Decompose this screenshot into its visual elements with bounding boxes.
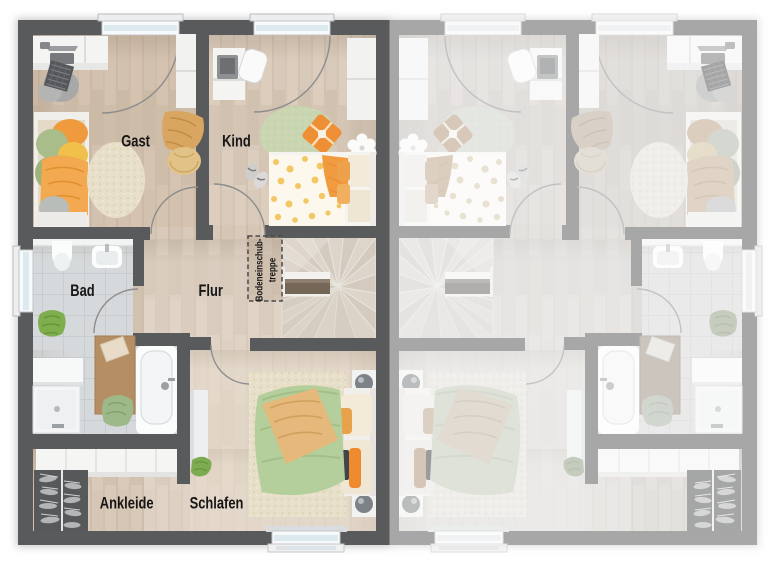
svg-text:Ankleide: Ankleide [100,494,154,513]
svg-text:Bodeneinschub-: Bodeneinschub- [254,239,265,302]
svg-text:Gast: Gast [121,132,150,151]
svg-text:Schlafen: Schlafen [190,494,244,513]
svg-text:Bad: Bad [70,281,94,300]
svg-text:Flur: Flur [199,281,223,300]
svg-text:Kind: Kind [222,132,251,151]
svg-text:treppe: treppe [267,258,278,283]
